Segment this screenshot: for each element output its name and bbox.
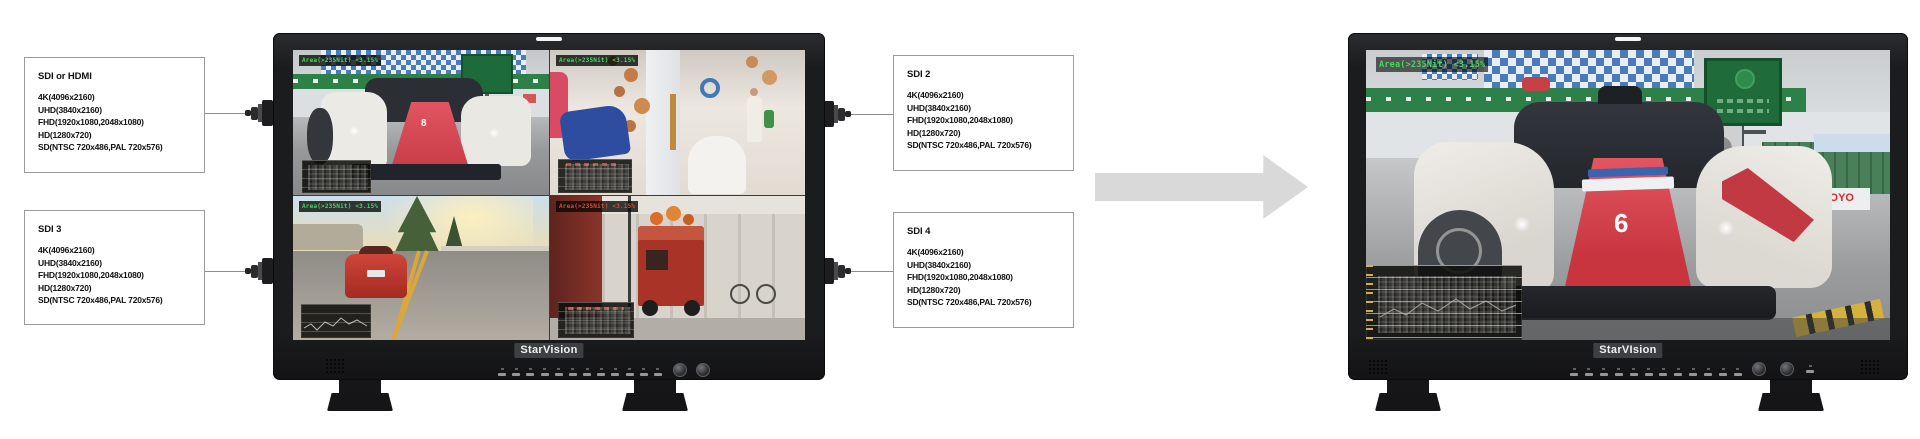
headlight-glint	[489, 128, 499, 138]
spec-line: SD(NTSC 720x486,PAL 720x576)	[907, 296, 1065, 309]
spec-box-title: SDI 4	[907, 225, 1065, 238]
speaker-grille	[1860, 359, 1880, 374]
spec-line: FHD(1920x1080,2048x1080)	[38, 269, 196, 282]
waveform-scope-overlay	[302, 160, 371, 193]
distant-terrain	[293, 224, 363, 250]
spec-line: FHD(1920x1080,2048x1080)	[907, 271, 1065, 284]
bnc-connector-icon	[823, 258, 851, 284]
quadrant-road-car-feed: Area(>235Nit) <3.15%	[293, 195, 549, 340]
spec-box-sdi-or-hdmi: SDI or HDMI 4K(4096x2160) UHD(3840x2160)…	[24, 57, 205, 173]
connector-line	[205, 271, 248, 272]
panel-button	[1674, 368, 1682, 376]
checkered-grandstand	[1484, 50, 1694, 88]
headlight-glint	[1718, 220, 1734, 236]
spec-box-sdi-4: SDI 4 4K(4096x2160) UHD(3840x2160) FHD(1…	[893, 212, 1074, 328]
quadrant-boutique-feed: Area(>235Nit) <3.15%	[549, 50, 805, 195]
bnc-connector-icon	[245, 258, 273, 284]
panel-button	[626, 368, 634, 376]
cart-wheel	[684, 300, 700, 316]
bnc-connector-icon	[823, 101, 851, 127]
spec-line: UHD(3840x2160)	[907, 102, 1065, 115]
panel-button	[1615, 368, 1623, 376]
spec-line: SD(NTSC 720x486,PAL 720x576)	[38, 141, 196, 154]
panel-button	[555, 368, 563, 376]
panel-button	[569, 368, 577, 376]
luminance-overlay: Area(>235Nit) <3.15%	[556, 55, 638, 66]
spec-line: 4K(4096x2160)	[907, 246, 1065, 259]
license-plate	[367, 270, 385, 277]
panel-button	[1806, 365, 1814, 373]
waveform-trace	[1366, 265, 1522, 340]
headlight-glint	[1514, 216, 1530, 232]
luminance-overlay: Area(>235Nit) <3.15%	[1376, 57, 1488, 72]
brand-logo: StarVIsion	[1593, 343, 1662, 358]
spec-line: FHD(1920x1080,2048x1080)	[907, 114, 1065, 127]
panel-button	[1570, 368, 1578, 376]
monitor-quad-view: 8 Area(>235Nit) <3.15%	[273, 33, 825, 380]
panel-button	[640, 368, 648, 376]
panel-button	[526, 368, 534, 376]
spec-line: SD(NTSC 720x486,PAL 720x576)	[38, 294, 196, 307]
monitor-stand-foot	[622, 380, 688, 411]
panel-button	[654, 368, 662, 376]
spec-line: 4K(4096x2160)	[38, 244, 196, 257]
spec-line: HD(1280x720)	[907, 284, 1065, 297]
copper-lamp	[634, 98, 650, 114]
connector-line	[205, 113, 248, 114]
copper-lamp	[762, 70, 777, 85]
spec-line: UHD(3840x2160)	[38, 257, 196, 270]
flower-bunch	[683, 214, 694, 225]
speaker-grille	[325, 358, 345, 373]
monitor-stand-foot	[1375, 380, 1441, 411]
flow-arrow-icon	[1095, 155, 1308, 219]
front-panel-buttons	[498, 363, 662, 376]
front-splitter	[351, 164, 501, 180]
panel-button	[611, 368, 619, 376]
rotary-knob	[1752, 362, 1766, 376]
spec-line: UHD(3840x2160)	[38, 104, 196, 117]
scoreboard-row	[1717, 99, 1769, 103]
blue-chaise	[559, 104, 631, 163]
bezel-handle-mark	[536, 37, 562, 41]
panel-button	[512, 368, 520, 376]
blue-wall	[1814, 134, 1890, 152]
waveform-scope-overlay	[558, 302, 634, 338]
car-number: 8	[421, 118, 427, 129]
race-car-wheel	[307, 108, 333, 164]
draped-table	[688, 136, 746, 194]
brand-logo: StarVision	[514, 343, 583, 358]
spec-box-sdi-2: SDI 2 4K(4096x2160) UHD(3840x2160) FHD(1…	[893, 55, 1074, 171]
bnc-connector-icon	[245, 100, 273, 126]
spec-box-sdi-3: SDI 3 4K(4096x2160) UHD(3840x2160) FHD(1…	[24, 210, 205, 325]
bicycle-wheel	[756, 284, 776, 304]
cart-window	[646, 250, 668, 270]
panel-button	[1645, 368, 1653, 376]
copper-lamp	[624, 68, 638, 82]
waveform-scope-overlay	[558, 159, 632, 193]
spec-line: HD(1280x720)	[907, 127, 1065, 140]
full-screen: SLIGHTLY MAD TOYO 6	[1366, 50, 1890, 340]
panel-button	[1659, 368, 1667, 376]
waveform-trace	[301, 304, 371, 338]
panel-button	[1689, 368, 1697, 376]
lamp-post	[628, 196, 631, 314]
person-figure	[747, 96, 762, 142]
bicycle-wheel	[730, 284, 750, 304]
panel-button	[1734, 368, 1742, 376]
bezel-handle-mark	[1615, 37, 1641, 41]
scoreboard-row	[1717, 109, 1769, 113]
gold-lamp-stand	[670, 94, 676, 150]
panel-button	[498, 368, 506, 376]
rotary-knob	[673, 363, 687, 377]
flower-bunch	[650, 212, 663, 225]
waveform-scope-overlay	[301, 304, 371, 338]
spec-line: 4K(4096x2160)	[907, 89, 1065, 102]
air-intake	[1598, 86, 1642, 104]
monitor-input-diagram: SDI or HDMI 4K(4096x2160) UHD(3840x2160)…	[0, 0, 1920, 439]
panel-button	[541, 368, 549, 376]
quad-screen: 8 Area(>235Nit) <3.15%	[293, 50, 805, 340]
spec-box-title: SDI 3	[38, 223, 196, 236]
quadrant-street-cart-feed: Area(>235Nit) <3.15%	[549, 195, 805, 340]
spec-line: HD(1280x720)	[38, 282, 196, 295]
red-airbox	[1522, 77, 1550, 91]
spec-box-title: SDI or HDMI	[38, 70, 196, 83]
panel-button	[1600, 368, 1608, 376]
headlight-glint	[349, 126, 359, 136]
monitor-stand-foot	[327, 380, 393, 411]
connector-line	[851, 114, 893, 115]
rotary-knob	[696, 363, 710, 377]
person-head	[750, 88, 758, 96]
spec-line: SD(NTSC 720x486,PAL 720x576)	[907, 139, 1065, 152]
connector-line	[851, 271, 893, 272]
spec-line: 4K(4096x2160)	[38, 91, 196, 104]
luminance-overlay: Area(>235Nit) <3.15%	[299, 55, 381, 66]
panel-button	[583, 368, 591, 376]
monitor-full-view: SLIGHTLY MAD TOYO 6	[1348, 33, 1908, 380]
flower-bunch	[666, 206, 681, 221]
copper-lamp	[614, 86, 625, 97]
panel-button	[1719, 368, 1727, 376]
panel-button	[1704, 368, 1712, 376]
blue-ring-ornament	[700, 78, 720, 98]
quadrant-race-car-feed: 8 Area(>235Nit) <3.15%	[293, 50, 549, 195]
luminance-overlay: Area(>235Nit) <3.15%	[299, 201, 381, 212]
spec-line: FHD(1920x1080,2048x1080)	[38, 116, 196, 129]
scoreboard-emblem	[1735, 69, 1755, 89]
speaker-grille	[1368, 359, 1388, 374]
spec-line: UHD(3840x2160)	[907, 259, 1065, 272]
luminance-overlay: Area(>235Nit) <3.15%	[556, 201, 638, 212]
car-number: 6	[1614, 208, 1628, 239]
cart-wheel	[642, 300, 658, 316]
panel-button	[597, 368, 605, 376]
panel-button	[1585, 368, 1593, 376]
rotary-knob	[1780, 362, 1794, 376]
panel-button	[1630, 368, 1638, 376]
waveform-scope-overlay	[1366, 265, 1522, 340]
front-panel-buttons	[1570, 363, 1742, 376]
monitor-stand-foot	[1758, 380, 1824, 411]
spec-box-title: SDI 2	[907, 68, 1065, 81]
copper-lamp	[746, 56, 758, 68]
spec-line: HD(1280x720)	[38, 129, 196, 142]
green-plant	[764, 110, 774, 128]
